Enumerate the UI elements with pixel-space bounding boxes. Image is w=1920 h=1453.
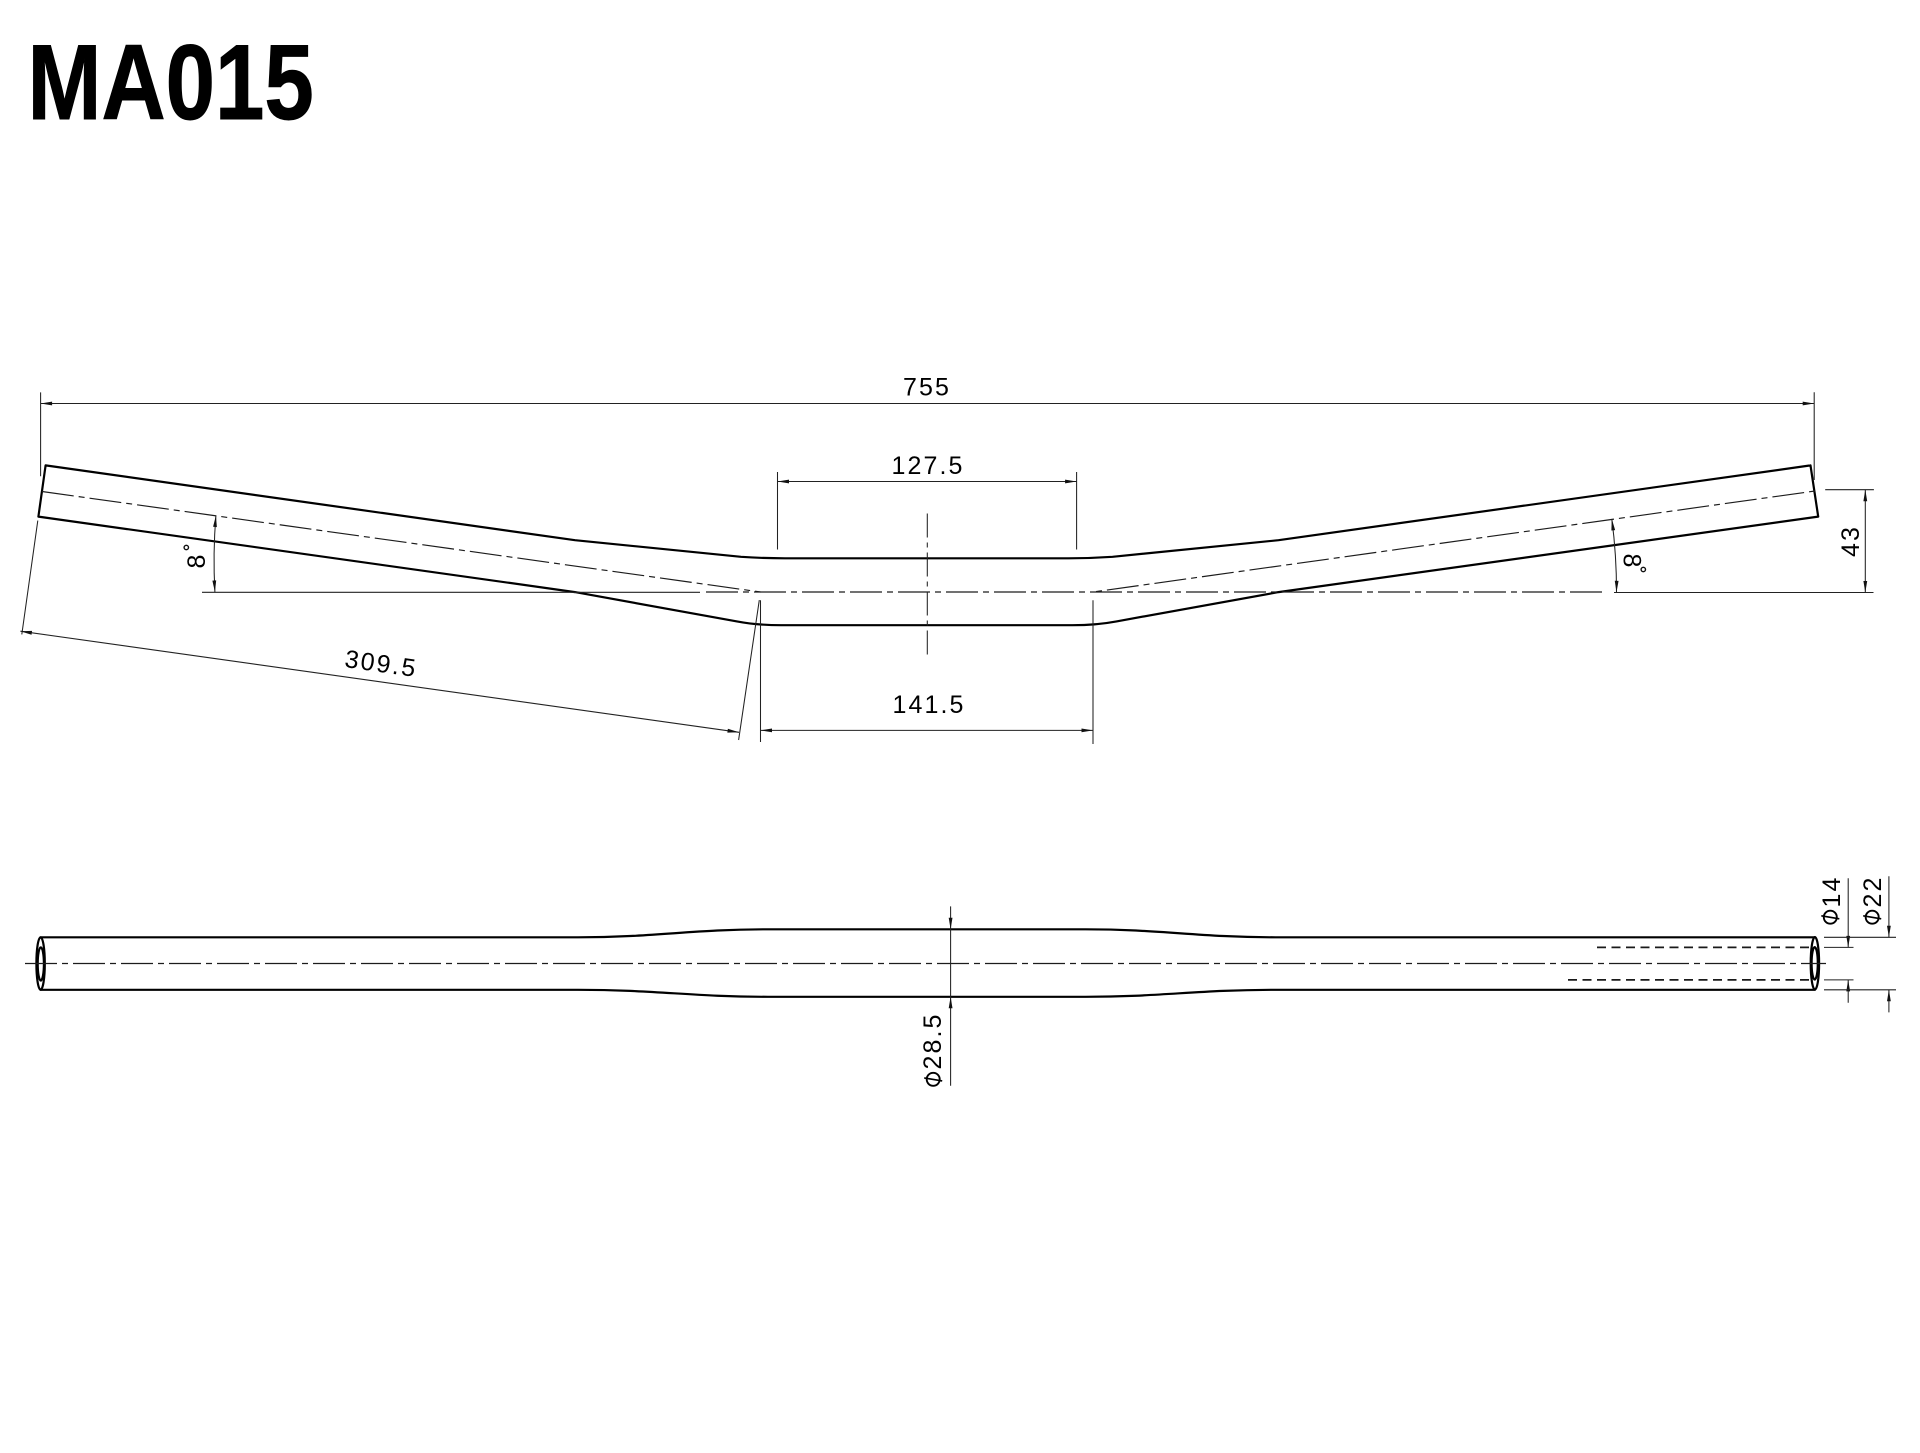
svg-text:755: 755: [903, 374, 951, 402]
svg-text:309.5: 309.5: [343, 645, 419, 683]
svg-text:14: 14: [1818, 875, 1846, 907]
svg-text:141.5: 141.5: [892, 691, 965, 719]
svg-text:28.5: 28.5: [919, 1012, 947, 1069]
svg-text:43: 43: [1837, 525, 1865, 557]
svg-text:MA015: MA015: [28, 22, 314, 142]
svg-text:8: 8: [183, 552, 211, 568]
svg-text:22: 22: [1859, 875, 1887, 907]
svg-text:127.5: 127.5: [891, 452, 964, 480]
svg-text:8: 8: [1618, 554, 1646, 570]
